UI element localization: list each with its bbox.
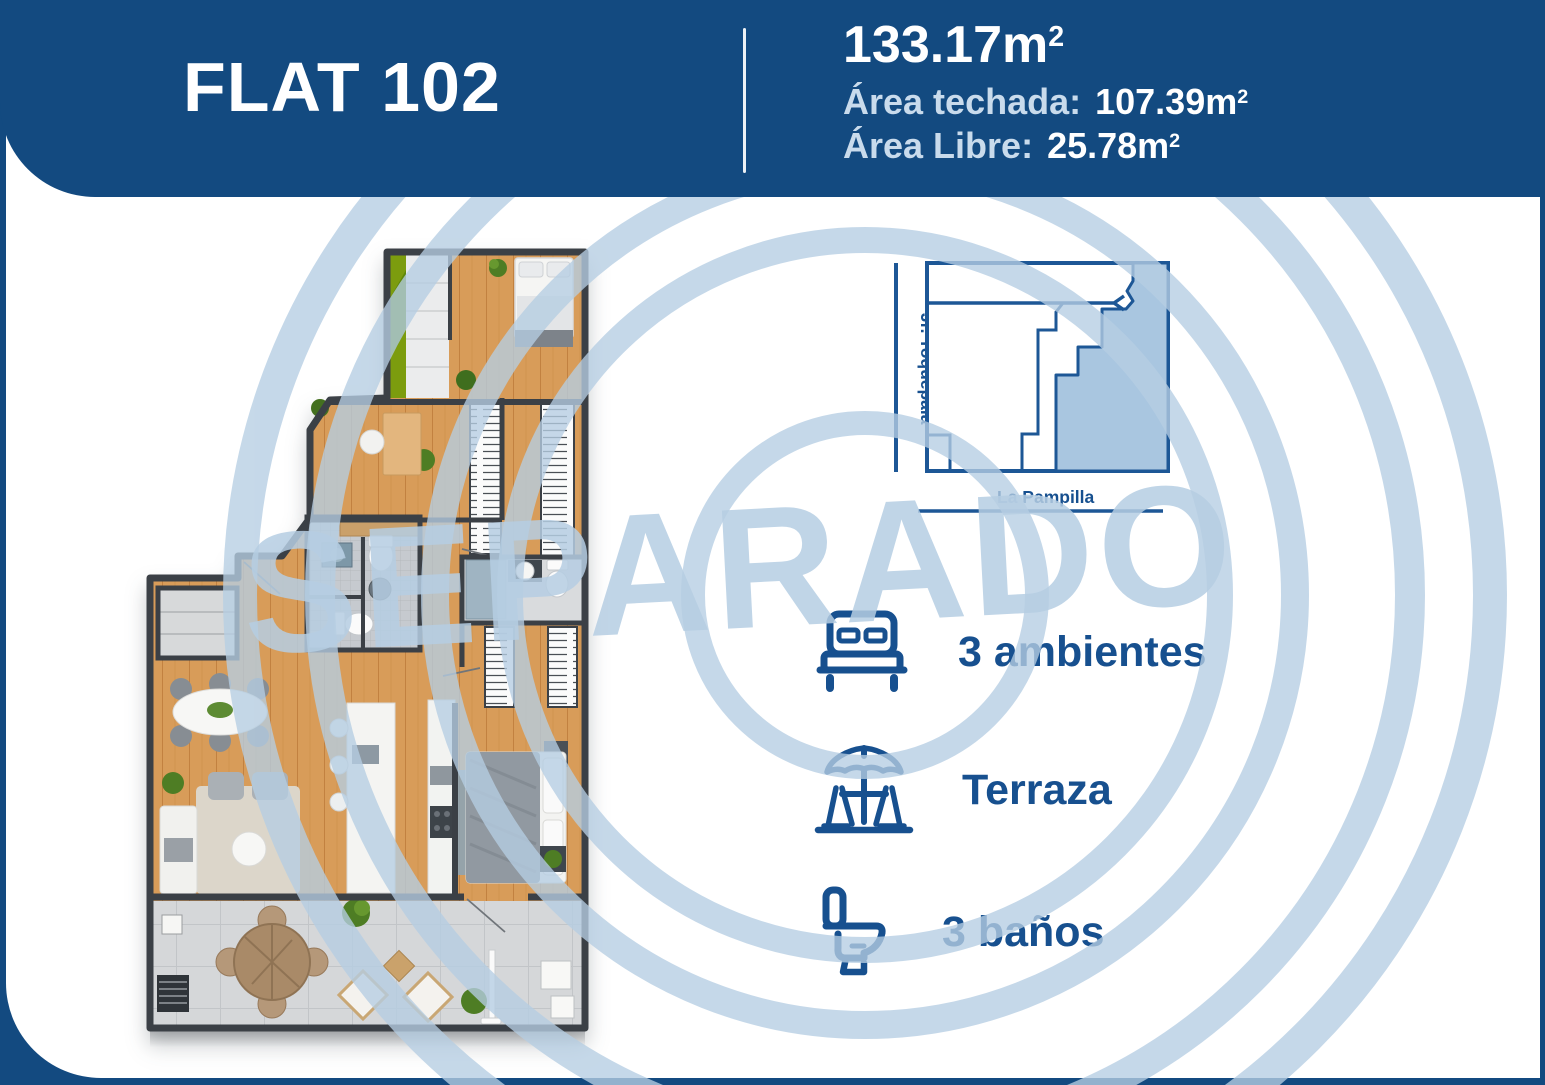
street-label-bottom: La Pampilla — [997, 487, 1095, 507]
area-libre-value: 25.78m — [1047, 125, 1169, 166]
area-summary: 133.17m2 Área techada:107.39m2 Área Libr… — [843, 18, 1248, 171]
flyer-page: Jr. Toquepala La Pampilla 3 ambientes — [0, 0, 1545, 1085]
area-techada-value: 107.39m — [1095, 81, 1237, 122]
area-techada-sup: 2 — [1237, 86, 1248, 108]
feature-rooms-label: 3 ambientes — [958, 628, 1207, 677]
area-libre-label: Área Libre: — [843, 125, 1033, 166]
total-area: 133.17m2 — [843, 18, 1248, 73]
area-techada-row: Área techada:107.39m2 — [843, 83, 1248, 127]
feature-terrace: Terraza — [812, 742, 1112, 838]
terrace-icon — [812, 742, 916, 838]
area-libre-sup: 2 — [1169, 130, 1180, 152]
area-libre-row: Área Libre:25.78m2 — [843, 127, 1248, 171]
area-techada-label: Área techada: — [843, 81, 1081, 122]
total-area-sup: 2 — [1048, 21, 1064, 53]
feature-baths: 3 baños — [812, 886, 1105, 978]
feature-baths-label: 3 baños — [942, 908, 1105, 957]
header-band: FLAT 102 133.17m2 Área techada:107.39m2 … — [0, 0, 1545, 197]
feature-rooms: 3 ambientes — [812, 608, 1207, 696]
page-title: FLAT 102 — [183, 52, 501, 122]
bed-icon — [812, 608, 912, 696]
toilet-icon — [812, 886, 896, 978]
header-divider — [743, 28, 746, 173]
feature-terrace-label: Terraza — [962, 766, 1112, 815]
total-area-value: 133.17m — [843, 16, 1048, 74]
